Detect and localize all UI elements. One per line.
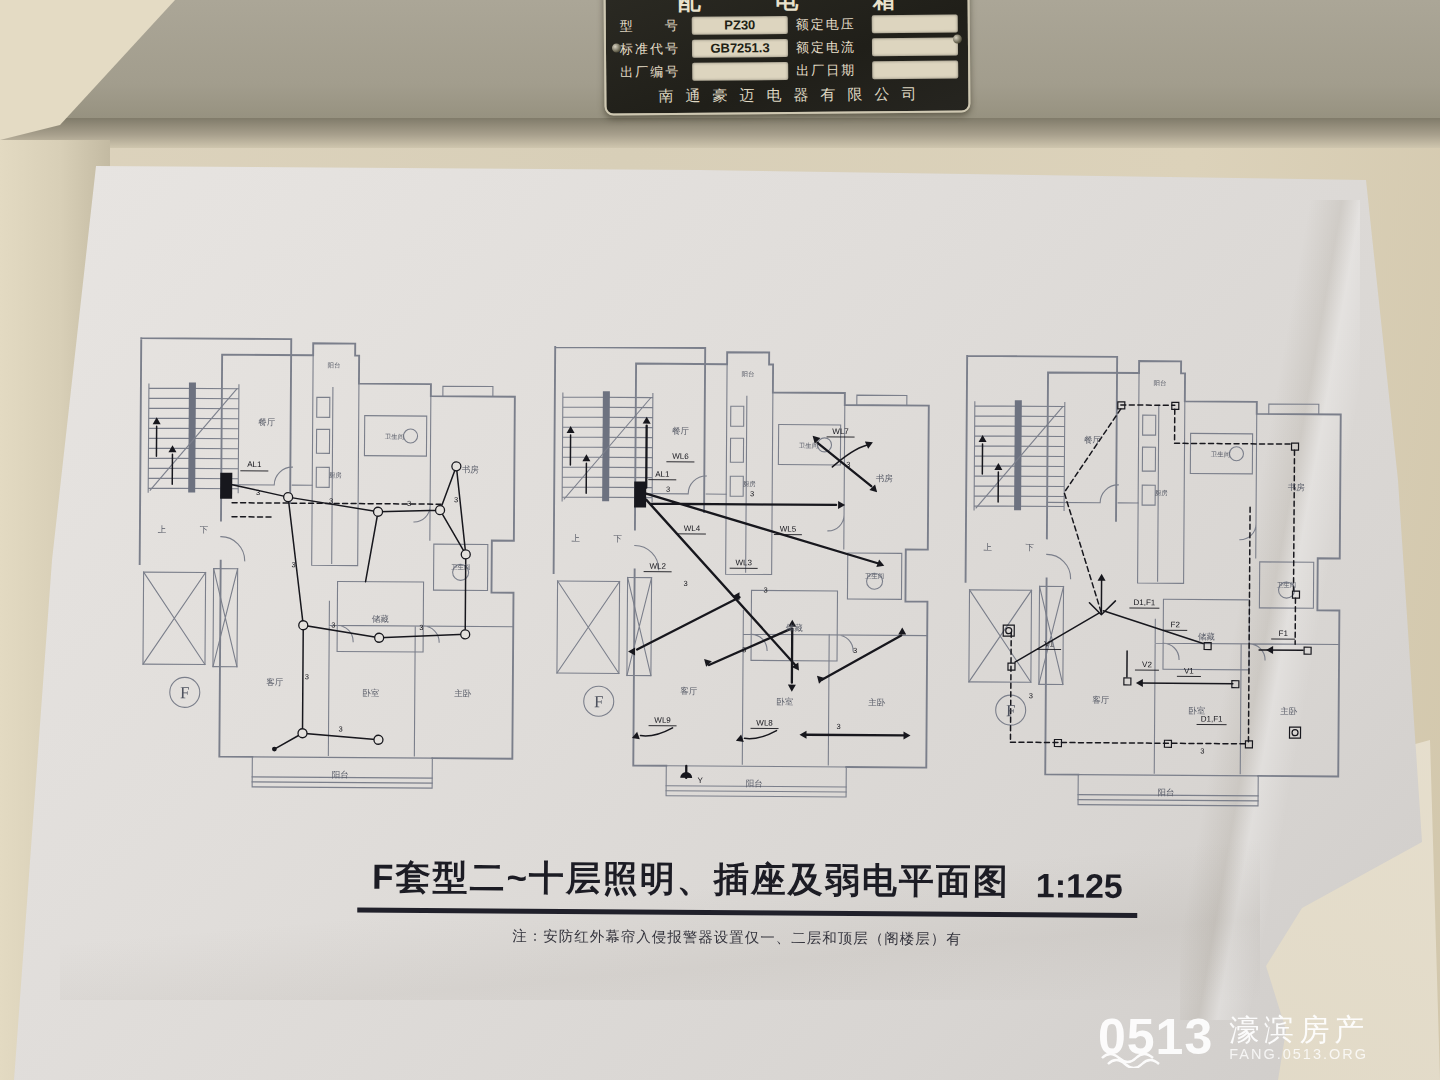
room-bedroom: 卧室: [1188, 705, 1206, 715]
wire-count: 3: [683, 579, 687, 588]
weak-d1f1b: D1,F1: [1201, 715, 1223, 724]
wire-count: 3: [331, 620, 335, 629]
wave-icon: [1100, 1052, 1176, 1068]
room-balcony-top: 阳台: [328, 361, 341, 369]
wire-count: 3: [742, 645, 746, 654]
wire-count: 3: [338, 724, 342, 733]
wire-count: 3: [853, 646, 857, 655]
stairs-up: 上: [984, 542, 993, 552]
paper-content: AL1 餐厅 阳台 厨房 卫生间 书房 储藏 卫生间 客厅 卧室 主卧 阳台 上…: [0, 0, 1440, 1080]
weak-f1: F1: [1279, 629, 1289, 638]
room-dining: 餐厅: [258, 417, 276, 427]
room-living: 客厅: [1092, 695, 1110, 705]
panel-label: AL1: [655, 470, 670, 479]
room-balcony-top: 阳台: [1153, 379, 1166, 387]
screw-icon: [612, 43, 621, 52]
weak-d1f1: D1,F1: [1134, 598, 1156, 607]
weak-f2: F2: [1171, 620, 1181, 629]
stairs-down: 下: [199, 525, 209, 535]
room-kitchen: 厨房: [329, 471, 343, 478]
wire-count: 3: [329, 496, 333, 505]
wire-count: 3: [419, 623, 423, 632]
serial-value: [692, 62, 788, 81]
wire-count: 3: [846, 460, 850, 469]
stairs-down: 下: [1025, 542, 1035, 552]
circuit-wl3: WL3: [735, 558, 752, 567]
circuit-wl6: WL6: [672, 452, 689, 461]
stairs-up: 上: [158, 524, 167, 534]
pendant-label: Y: [697, 776, 703, 785]
drawing-title: F套型二~十层照明、插座及弱电平面图: [372, 854, 1010, 905]
room-dining: 餐厅: [672, 426, 690, 436]
circuit-wl8: WL8: [756, 718, 773, 727]
room-bath: 卫生间: [1211, 451, 1231, 459]
circuit-wl5: WL5: [780, 525, 797, 534]
lighting-wiring: [218, 460, 471, 753]
room-storage: 储藏: [372, 614, 390, 624]
nameplate-fields: 型 号 PZ30 额定电压 标准代号 GB7251.3 额定电流 出厂编号 出厂…: [606, 10, 969, 81]
room-study: 书房: [876, 473, 893, 483]
room-master: 主卧: [1280, 706, 1298, 716]
room-storage: 储藏: [1198, 631, 1216, 641]
watermark-text: 濠滨房产 FANG.0513.ORG: [1229, 1013, 1369, 1062]
weak-v1b: V1: [1184, 666, 1194, 675]
room-study: 书房: [462, 464, 479, 474]
wire-count: 3: [305, 672, 309, 681]
weak-v2: V2: [1142, 660, 1152, 669]
standard-label: 标准代号: [620, 40, 684, 59]
room-living: 客厅: [266, 677, 284, 687]
unit-letter: F: [1006, 701, 1016, 720]
voltage-label: 额定电压: [796, 15, 864, 34]
wall-beam-shadow: [0, 118, 1440, 148]
date-value: [872, 61, 958, 80]
room-bath: 卫生间: [385, 433, 405, 441]
watermark-name: 濠滨房产: [1229, 1013, 1369, 1046]
unit-letter: F: [594, 692, 604, 711]
wire-count: 3: [454, 495, 458, 504]
floorplan-weak-current: V1 D1,F1 F2 F1 V2 V1 D1,F1 餐厅 阳台 厨房 卫生间 …: [950, 342, 1349, 825]
serial-label: 出厂编号: [620, 63, 684, 82]
stairs-down: 下: [613, 533, 623, 543]
wire-count: 3: [407, 499, 411, 508]
model-value: PZ30: [692, 16, 788, 35]
panel-label: AL1: [247, 460, 262, 469]
room-balcony: 阳台: [1158, 787, 1175, 797]
room-master: 主卧: [454, 688, 472, 698]
room-bath2: 卫生间: [1277, 581, 1297, 589]
circuit-wl4: WL4: [684, 524, 701, 533]
nameplate: 配 电 箱 型 号 PZ30 额定电压 标准代号 GB7251.3 额定电流 出…: [603, 0, 970, 116]
wire-count: 3: [1029, 691, 1033, 700]
floorplan-sockets: AL1 WL6 WL4 WL5 WL7 WL2 WL3 WL9 WL8 Y 餐厅…: [538, 333, 937, 816]
room-balcony-top: 阳台: [741, 370, 754, 378]
circuit-wl9: WL9: [654, 716, 671, 725]
voltage-value: [872, 15, 958, 34]
current-label: 额定电流: [796, 38, 864, 57]
stairs-up: 上: [572, 533, 581, 543]
date-label: 出厂日期: [796, 61, 864, 80]
weak-v1: V1: [1044, 639, 1054, 648]
model-label: 型 号: [620, 17, 684, 36]
wire-count: 3: [1200, 746, 1204, 755]
unit-letter: F: [180, 683, 190, 702]
plan-labels: AL1 WL6 WL4 WL5 WL7 WL2 WL3 WL9 WL8 Y 餐厅…: [570, 369, 894, 789]
blueprint-paper: AL1 餐厅 阳台 厨房 卫生间 书房 储藏 卫生间 客厅 卧室 主卧 阳台 上…: [0, 0, 1440, 1080]
room-kitchen: 厨房: [1155, 489, 1169, 496]
standard-value: GB7251.3: [692, 39, 788, 58]
watermark: 0513 濠滨房产 FANG.0513.ORG: [1098, 1012, 1369, 1062]
drawing-note: 注：安防红外幕帘入侵报警器设置仅一、二层和顶层（阁楼层）有: [377, 926, 1097, 950]
room-balcony: 阳台: [332, 769, 349, 779]
room-bath2: 卫生间: [865, 572, 885, 580]
wire-count: 3: [292, 560, 296, 569]
wire-count: 3: [750, 489, 754, 498]
wire-count: 3: [763, 585, 767, 594]
room-balcony: 阳台: [746, 778, 763, 788]
room-living: 客厅: [680, 686, 698, 696]
room-bedroom: 卧室: [776, 697, 794, 707]
room-storage: 储藏: [786, 623, 804, 633]
nameplate-title: 配 电 箱: [605, 0, 967, 14]
circuit-wl2: WL2: [649, 562, 666, 571]
watermark-url: FANG.0513.ORG: [1229, 1046, 1369, 1062]
room-master: 主卧: [868, 697, 886, 707]
wire-count: 3: [666, 485, 670, 494]
wire-count: 3: [256, 488, 260, 497]
room-dining: 餐厅: [1084, 435, 1102, 445]
current-value: [872, 38, 958, 57]
room-bath: 卫生间: [799, 442, 819, 450]
watermark-logo: 0513: [1098, 1012, 1213, 1062]
room-bath2: 卫生间: [451, 563, 471, 571]
floorplan-lighting: AL1 餐厅 阳台 厨房 卫生间 书房 储藏 卫生间 客厅 卧室 主卧 阳台 上…: [124, 324, 523, 807]
room-kitchen: 厨房: [743, 480, 757, 487]
room-study: 书房: [1288, 482, 1305, 492]
room-bedroom: 卧室: [362, 688, 380, 698]
circuit-wl7: WL7: [832, 427, 849, 436]
nameplate-company: 南通豪迈电器有限公司: [606, 84, 968, 106]
drawing-scale: 1:125: [1036, 866, 1123, 906]
wire-count: 3: [836, 722, 840, 731]
drawing-title-block: F套型二~十层照明、插座及弱电平面图 1:125: [357, 854, 1137, 918]
photo-scene: 配 电 箱 型 号 PZ30 额定电压 标准代号 GB7251.3 额定电流 出…: [0, 0, 1440, 1080]
screw-icon: [953, 34, 962, 43]
